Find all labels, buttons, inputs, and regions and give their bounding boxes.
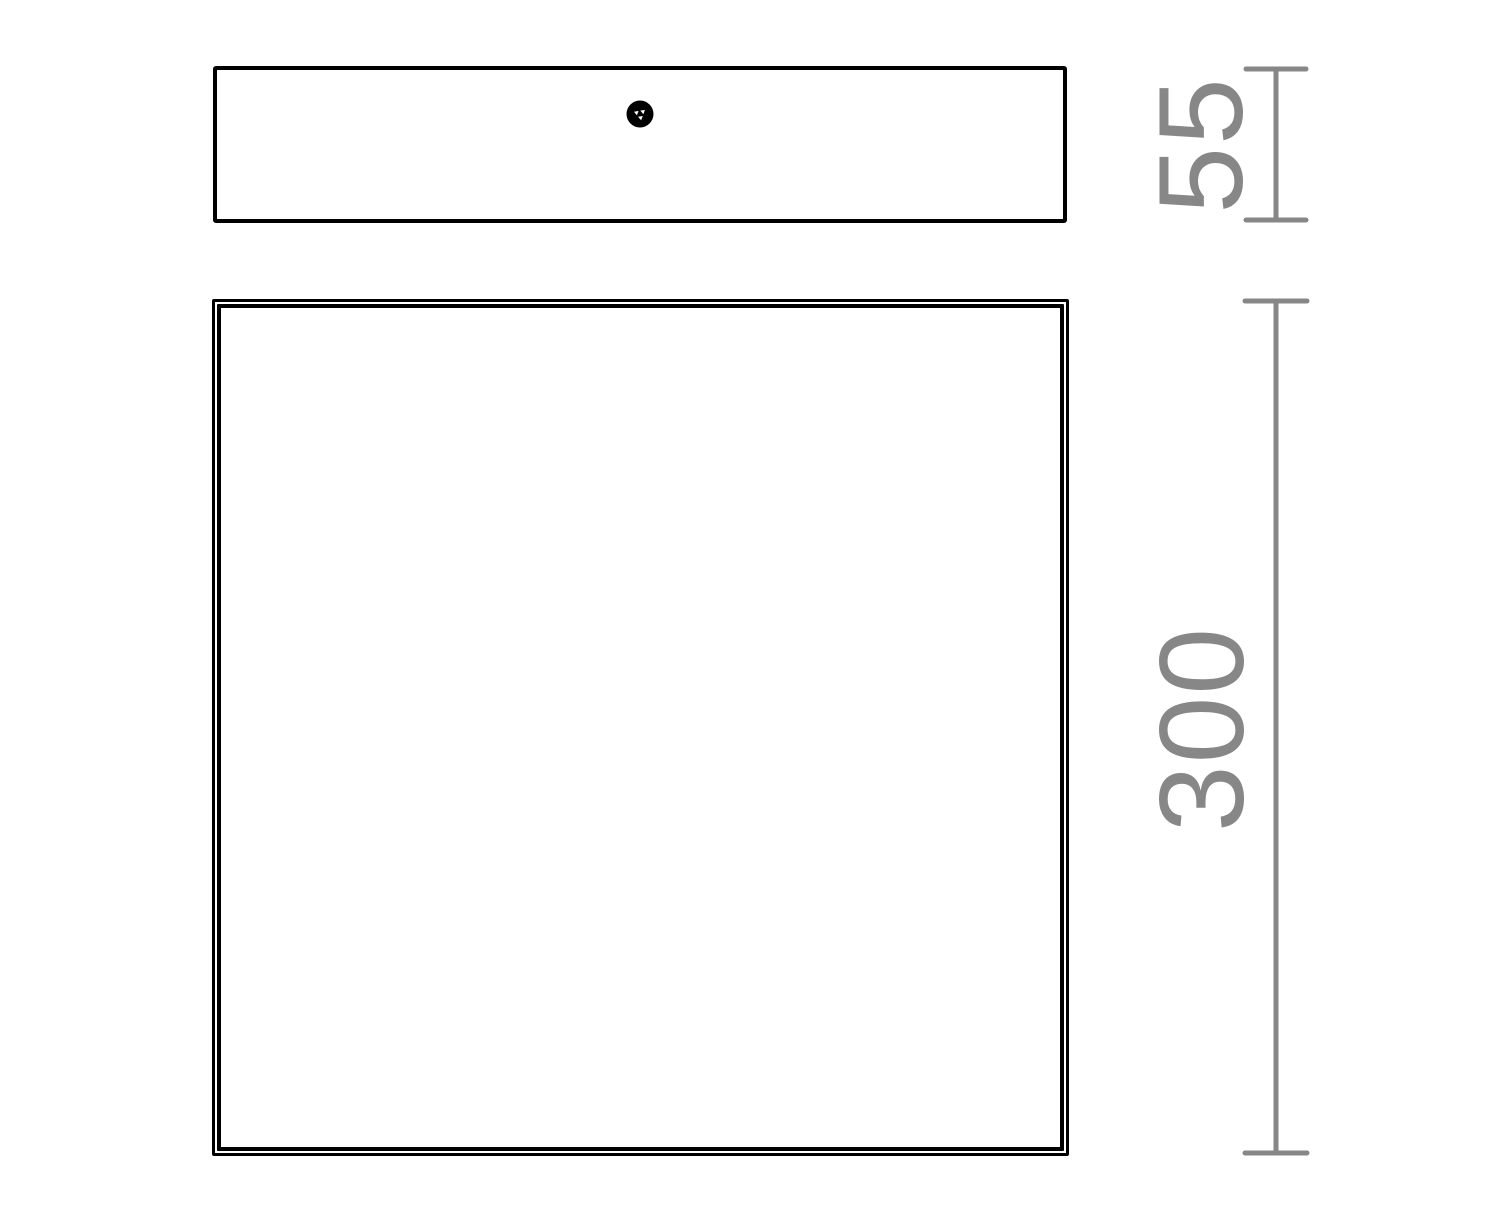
side-view-outline xyxy=(213,66,1067,223)
screw-head xyxy=(627,101,654,128)
front-view-inner-outline xyxy=(217,304,1064,1151)
front-view-outer-outline xyxy=(212,299,1069,1156)
technical-drawing-canvas: 55 300 xyxy=(0,0,1500,1232)
screw-icon xyxy=(626,100,654,128)
dimension-label-55: 55 xyxy=(1081,25,1321,265)
dimension-label-300: 300 xyxy=(1022,549,1382,909)
